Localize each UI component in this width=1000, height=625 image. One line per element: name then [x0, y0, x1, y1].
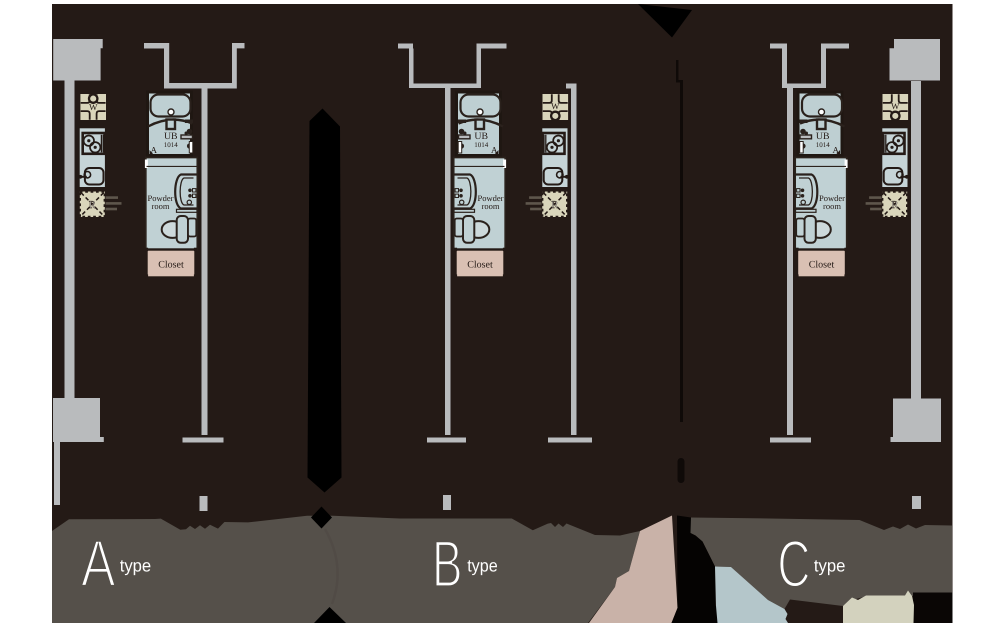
svg-text:A: A [81, 526, 116, 600]
svg-text:1014: 1014 [474, 141, 489, 149]
svg-text:W: W [891, 101, 900, 111]
svg-text:Closet: Closet [158, 259, 184, 270]
svg-text:room: room [482, 201, 500, 211]
svg-text:type: type [120, 556, 152, 576]
svg-text:W: W [551, 101, 560, 111]
svg-text:1014: 1014 [164, 141, 179, 149]
svg-text:W: W [89, 102, 98, 112]
svg-text:R: R [89, 200, 96, 211]
svg-text:room: room [823, 201, 841, 211]
svg-text:type: type [467, 556, 498, 576]
svg-text:R: R [891, 200, 898, 211]
svg-text:1014: 1014 [816, 141, 831, 149]
svg-text:R: R [551, 200, 558, 211]
svg-text:type: type [814, 556, 846, 576]
svg-text:room: room [152, 201, 170, 211]
svg-text:B: B [432, 527, 463, 601]
svg-text:C: C [777, 526, 810, 600]
svg-text:Closet: Closet [467, 259, 493, 270]
svg-text:Closet: Closet [809, 259, 835, 270]
